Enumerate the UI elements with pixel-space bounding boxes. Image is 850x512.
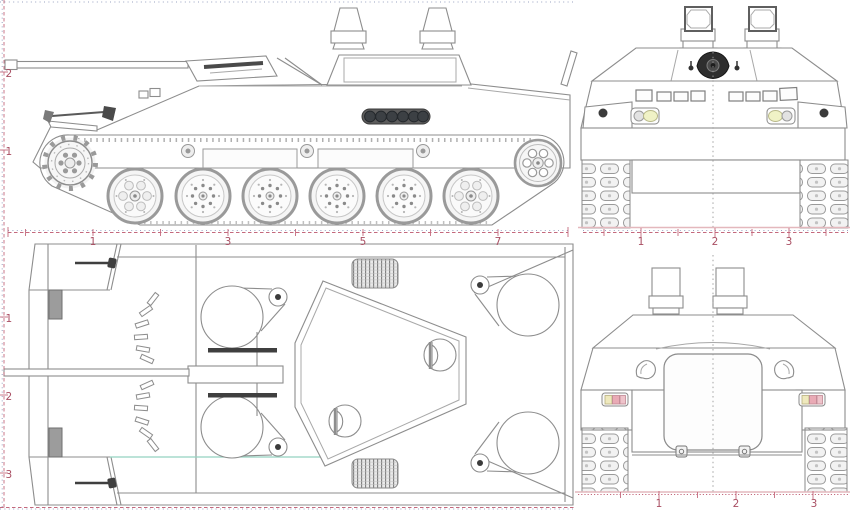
- storage-box: [318, 149, 413, 168]
- exhaust-ports: [362, 109, 430, 124]
- headlight-left: [631, 108, 659, 124]
- ruler-label: 2: [6, 68, 13, 80]
- ruler-label: 1: [656, 498, 663, 510]
- fender-box-left: [583, 102, 632, 128]
- tail-light-left: [602, 393, 628, 406]
- view-side-elevation: [5, 8, 577, 225]
- idler-wheel: [515, 140, 561, 186]
- bow-pad-bottom: [49, 428, 62, 457]
- bow-pad-top: [49, 290, 62, 319]
- intake-grille-bottom: [352, 459, 398, 488]
- ruler-label: 2: [6, 391, 13, 403]
- ruler-label: 3: [6, 469, 13, 481]
- driver-periscope: [139, 91, 148, 98]
- gun-barrel-plan: [4, 369, 189, 376]
- rear-periscope-right: [713, 268, 747, 314]
- turret-rear: [593, 315, 835, 348]
- driver-periscope: [150, 89, 160, 97]
- track-rear-right: [805, 428, 847, 492]
- marker-light-right: [820, 109, 829, 118]
- ruler-label: 1: [638, 236, 645, 248]
- tail-light-right: [799, 393, 825, 406]
- ruler-label: 1: [6, 146, 13, 158]
- crew-hatch-right: [424, 339, 456, 371]
- cupola-right: [420, 8, 455, 49]
- ruler-label: 3: [225, 236, 232, 248]
- turret-side: [327, 55, 471, 85]
- ruler-label: 3: [786, 236, 793, 248]
- storage-box: [203, 149, 297, 168]
- ruler-side-vertical: 2 1: [0, 68, 12, 158]
- rear-antenna-base: [561, 51, 577, 86]
- ruler-label: 1: [6, 313, 13, 325]
- ruler-label: 7: [495, 236, 502, 248]
- ruler-label: 5: [360, 236, 367, 248]
- ruler-rear-horizontal: 1 2 3: [578, 491, 848, 510]
- blueprint-svg: 1 3 5 7 2 1 1 2 3: [0, 0, 850, 512]
- blueprint-canvas: 1 3 5 7 2 1 1 2 3: [0, 0, 850, 512]
- view-top-plan: [4, 244, 573, 505]
- cupola-left: [331, 8, 366, 49]
- ruler-label: 2: [733, 498, 740, 510]
- mirror-head: [102, 106, 116, 121]
- intake-grille-top: [352, 259, 398, 288]
- front-periscope-left: [680, 7, 717, 52]
- gun-mantlet-plan: [188, 366, 283, 383]
- ruler-label: 3: [811, 498, 818, 510]
- gun-cradle-rail: [208, 348, 277, 353]
- lower-hull-front: [632, 160, 800, 193]
- ruler-label: 1: [90, 236, 97, 248]
- track-front-right: [800, 160, 848, 228]
- view-rear-elevation: [575, 255, 850, 492]
- marker-light-left: [599, 109, 608, 118]
- crew-hatch-left: [329, 405, 361, 437]
- headlight-right: [767, 108, 795, 124]
- ruler-front-horizontal: 1 2 3: [583, 228, 848, 248]
- track-rear-left: [582, 428, 628, 492]
- front-periscope-right: [744, 7, 781, 52]
- road-wheels: [108, 169, 498, 223]
- mirror-arm: [52, 112, 104, 116]
- track-front-left: [582, 160, 630, 228]
- gun-mantlet-side: [186, 56, 277, 81]
- view-front-elevation: [578, 7, 850, 228]
- rear-periscope-left: [649, 268, 683, 314]
- gun-barrel-side: [6, 62, 188, 69]
- drive-sprocket: [45, 138, 96, 189]
- gun-cradle-rail: [208, 393, 277, 398]
- ruler-label: 2: [712, 236, 719, 248]
